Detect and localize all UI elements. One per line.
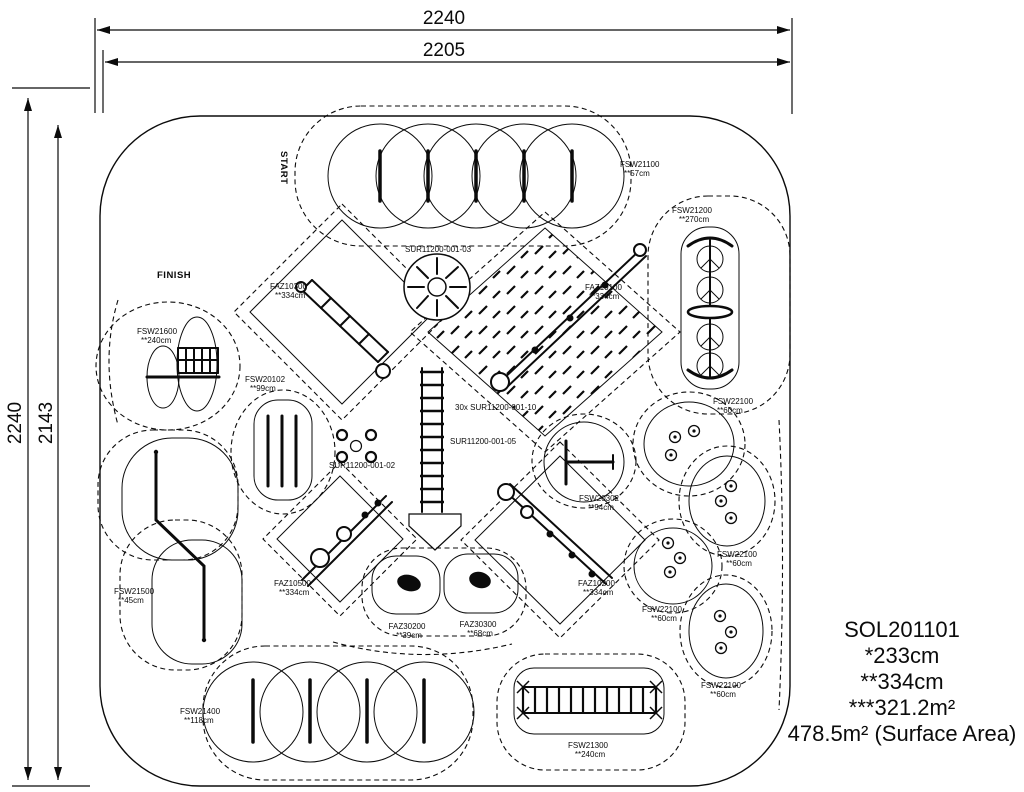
label-fsw22100d-value: **60cm <box>710 690 736 699</box>
zone-fsw21400: FSW21400 **118cm <box>180 646 474 780</box>
legend-area1: ***321.2m² <box>849 695 955 720</box>
slide-structure <box>296 280 390 378</box>
zone-fsw21500: FSW21500 **45cm <box>98 430 242 670</box>
swing-seats <box>380 151 572 201</box>
label-fsw22100c-value: **60cm <box>651 614 677 623</box>
direction-arrow-icon <box>409 514 461 550</box>
label-fsw21300-value: **240cm <box>575 750 606 759</box>
label-fsw21100-code: FSW21100 <box>620 160 660 169</box>
label-fsw20302-code: FSW20302 <box>579 494 620 503</box>
zone-faz10200: FAZ10200 **334cm <box>461 442 659 638</box>
label-faz30200-code: FAZ30200 <box>389 622 426 631</box>
springer-seat <box>467 569 492 590</box>
compass-rose: SUR11200-001-03 <box>404 245 472 320</box>
dim-left-outer-text: 2240 <box>5 402 26 444</box>
label-fsw22100a-code: FSW22100 <box>713 397 754 406</box>
dim-left-inner-text: 2143 <box>36 402 57 444</box>
label-fsw21500-code: FSW21500 <box>114 587 155 596</box>
zone-fsw21300: FSW21300 **240cm <box>497 654 685 770</box>
label-fsw22100d-code: FSW22100 <box>701 681 742 690</box>
dimension-extension-lines <box>12 18 792 786</box>
zone-fsw21100: FSW21100 **57cm <box>295 106 660 246</box>
zone-fsw20102: FSW20102 **99cm <box>231 375 335 514</box>
label-faz10200-value: **334cm <box>583 588 614 597</box>
ladder-grid <box>178 348 218 373</box>
label-fsw21400-code: FSW21400 <box>180 707 221 716</box>
dimension-left-outer: 2240 <box>5 98 32 780</box>
label-fsw21200-code: FSW21200 <box>672 206 713 215</box>
dimension-top-outer: 2240 <box>97 8 790 34</box>
post-anchor-cluster: SUR11200-001-02 <box>329 430 396 470</box>
label-fsw21200-value: **270cm <box>679 215 710 224</box>
zone-faz10500: FAZ10500 **334cm <box>263 462 417 616</box>
label-faz10100-value: **334cm <box>589 292 620 301</box>
label-fsw21300-code: FSW21300 <box>568 741 609 750</box>
label-sur10: 30x SUR11200-001-10 <box>455 403 537 412</box>
technical-drawing-canvas: 2240 2205 2240 2143 START FINISH <box>0 0 1024 792</box>
label-fsw20302-value: **94cm <box>588 503 614 512</box>
label-fsw21600-code: FSW21600 <box>137 327 178 336</box>
label-faz10200-code: FAZ10200 <box>578 579 615 588</box>
arrowhead-icon <box>97 26 110 34</box>
label-faz30300-value: **68cm <box>467 629 493 638</box>
label-fsw20102-code: FSW20102 <box>245 375 286 384</box>
zone-fsw21600: FSW21600 **240cm <box>96 302 240 430</box>
dimension-left-inner: 2143 <box>36 125 62 780</box>
zone-fsw21200: FSW21200 **270cm <box>648 196 790 414</box>
legend-area2: 478.5m² (Surface Area) <box>788 721 1017 746</box>
label-faz30300-code: FAZ30300 <box>460 620 497 629</box>
label-sur05: SUR11200-001-05 <box>450 437 517 446</box>
springer-seat <box>395 572 422 594</box>
label-fsw22100c-code: FSW22100 <box>642 605 683 614</box>
start-marker: START <box>278 151 289 184</box>
label-sur03: SUR11200-001-03 <box>405 245 472 254</box>
legend-height2: **334cm <box>860 669 943 694</box>
label-faz30200-value: **39cm <box>396 631 422 640</box>
arrowhead-icon <box>54 767 62 780</box>
label-fsw20102-value: **99cm <box>250 384 276 393</box>
dim-top-outer-text: 2240 <box>423 8 465 29</box>
finish-marker: FINISH <box>157 270 191 281</box>
legend-product-code: SOL201101 <box>844 617 960 642</box>
arrowhead-icon <box>777 26 790 34</box>
label-fsw21400-value: **118cm <box>184 716 214 725</box>
label-fsw22100b-value: **60cm <box>726 559 752 568</box>
swing-seats <box>253 680 424 742</box>
arrowhead-icon <box>24 98 32 111</box>
zone-faz30200-faz30300: FAZ30200 **39cm FAZ30300 **68cm <box>362 548 526 640</box>
label-fsw22100a-value: **60cm <box>717 406 743 415</box>
label-faz10500-value: **334cm <box>279 588 310 597</box>
label-faz10300-value: **334cm <box>275 291 306 300</box>
label-fsw21100-value: **57cm <box>624 169 650 178</box>
arrowhead-icon <box>777 58 790 66</box>
dimension-top-inner: 2205 <box>105 40 790 66</box>
arrowhead-icon <box>105 58 118 66</box>
arrowhead-icon <box>24 767 32 780</box>
legend-height1: *233cm <box>865 643 940 668</box>
label-faz10500-code: FAZ10500 <box>274 579 311 588</box>
dim-top-inner-text: 2205 <box>423 40 465 61</box>
playground-plan-svg: 2240 2205 2240 2143 START FINISH <box>0 0 1024 792</box>
label-faz10300-code: FAZ10300 <box>270 282 307 291</box>
label-fsw21500-value: **45cm <box>118 596 144 605</box>
zone-fsw22100-group: FSW22100 **60cm FSW22100 **60cm FSW22100… <box>624 392 775 699</box>
label-fsw21600-value: **240cm <box>141 336 172 345</box>
climbing-wheels <box>688 246 732 379</box>
label-fsw22100b-code: FSW22100 <box>717 550 758 559</box>
label-faz10100-code: FAZ10100 <box>585 283 622 292</box>
legend-block: SOL201101 *233cm **334cm ***321.2m² 478.… <box>788 617 1017 746</box>
pole-structure <box>302 496 392 586</box>
arrowhead-icon <box>54 125 62 138</box>
